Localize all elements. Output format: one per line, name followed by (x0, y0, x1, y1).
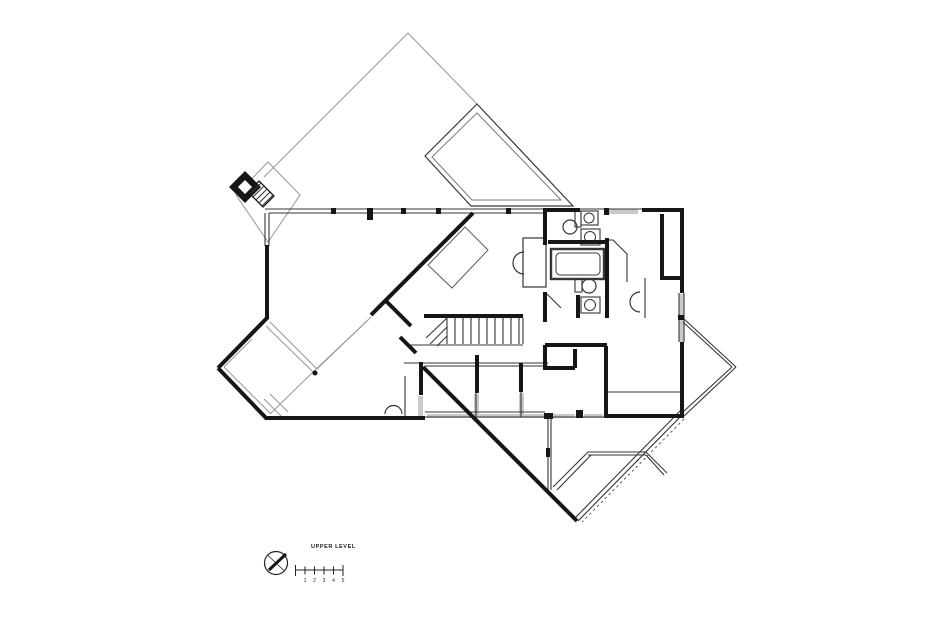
thin-line (553, 452, 588, 487)
thin-line (547, 294, 561, 308)
thin-line (683, 367, 736, 417)
thin-line (557, 455, 591, 490)
wall-block (367, 208, 373, 220)
wall-block (331, 208, 336, 214)
wall-block (401, 208, 406, 214)
thin-line (575, 410, 681, 518)
loft-bed-outline (428, 227, 488, 288)
faint-line (408, 33, 477, 104)
faint-line (270, 322, 317, 369)
fixture-outline (523, 238, 546, 287)
faint-line (264, 33, 408, 177)
faint-line (270, 394, 288, 412)
fixture-circle (582, 279, 596, 293)
desk-chair (513, 252, 524, 274)
fixture-outline (556, 253, 600, 275)
wall-block (546, 448, 550, 457)
fixture-outline (575, 211, 581, 227)
blueprint-page: UPPER LEVEL 12345 (0, 0, 932, 634)
wall-block (604, 208, 609, 215)
wall-block (544, 413, 553, 419)
wall-segment (371, 213, 473, 315)
fixture-outline (575, 279, 582, 292)
wall-segment (423, 367, 577, 521)
thin-line (430, 327, 447, 344)
wall-block (506, 208, 511, 214)
floor-plan (0, 0, 932, 634)
dashed-line (582, 419, 684, 522)
wall-block (576, 410, 583, 418)
skylight-outline (425, 104, 573, 206)
wall-segment (218, 368, 267, 419)
vanity-counter (607, 240, 627, 282)
column-dot (313, 371, 318, 376)
thin-line (646, 455, 664, 475)
window-band (605, 209, 638, 214)
wall-block (436, 208, 441, 214)
wall-block (678, 315, 684, 320)
skylight-inner-outline (432, 113, 561, 200)
thin-line (683, 318, 736, 367)
faint-line (224, 367, 271, 414)
wall-segment (386, 301, 411, 326)
faint-line (271, 372, 313, 413)
thin-line (683, 322, 732, 367)
wall-segment (218, 317, 268, 368)
fixture-circle (585, 300, 596, 311)
thin-line (426, 318, 447, 338)
thin-line (646, 452, 667, 473)
basin (385, 406, 402, 415)
fixture-circle (584, 213, 594, 223)
faint-line (266, 326, 313, 372)
thin-line (578, 413, 684, 521)
thin-line (683, 367, 732, 412)
faint-line (264, 399, 283, 418)
window-band (418, 396, 423, 417)
faint-line (224, 339, 252, 367)
faint-line (313, 320, 368, 372)
basin (630, 292, 640, 312)
